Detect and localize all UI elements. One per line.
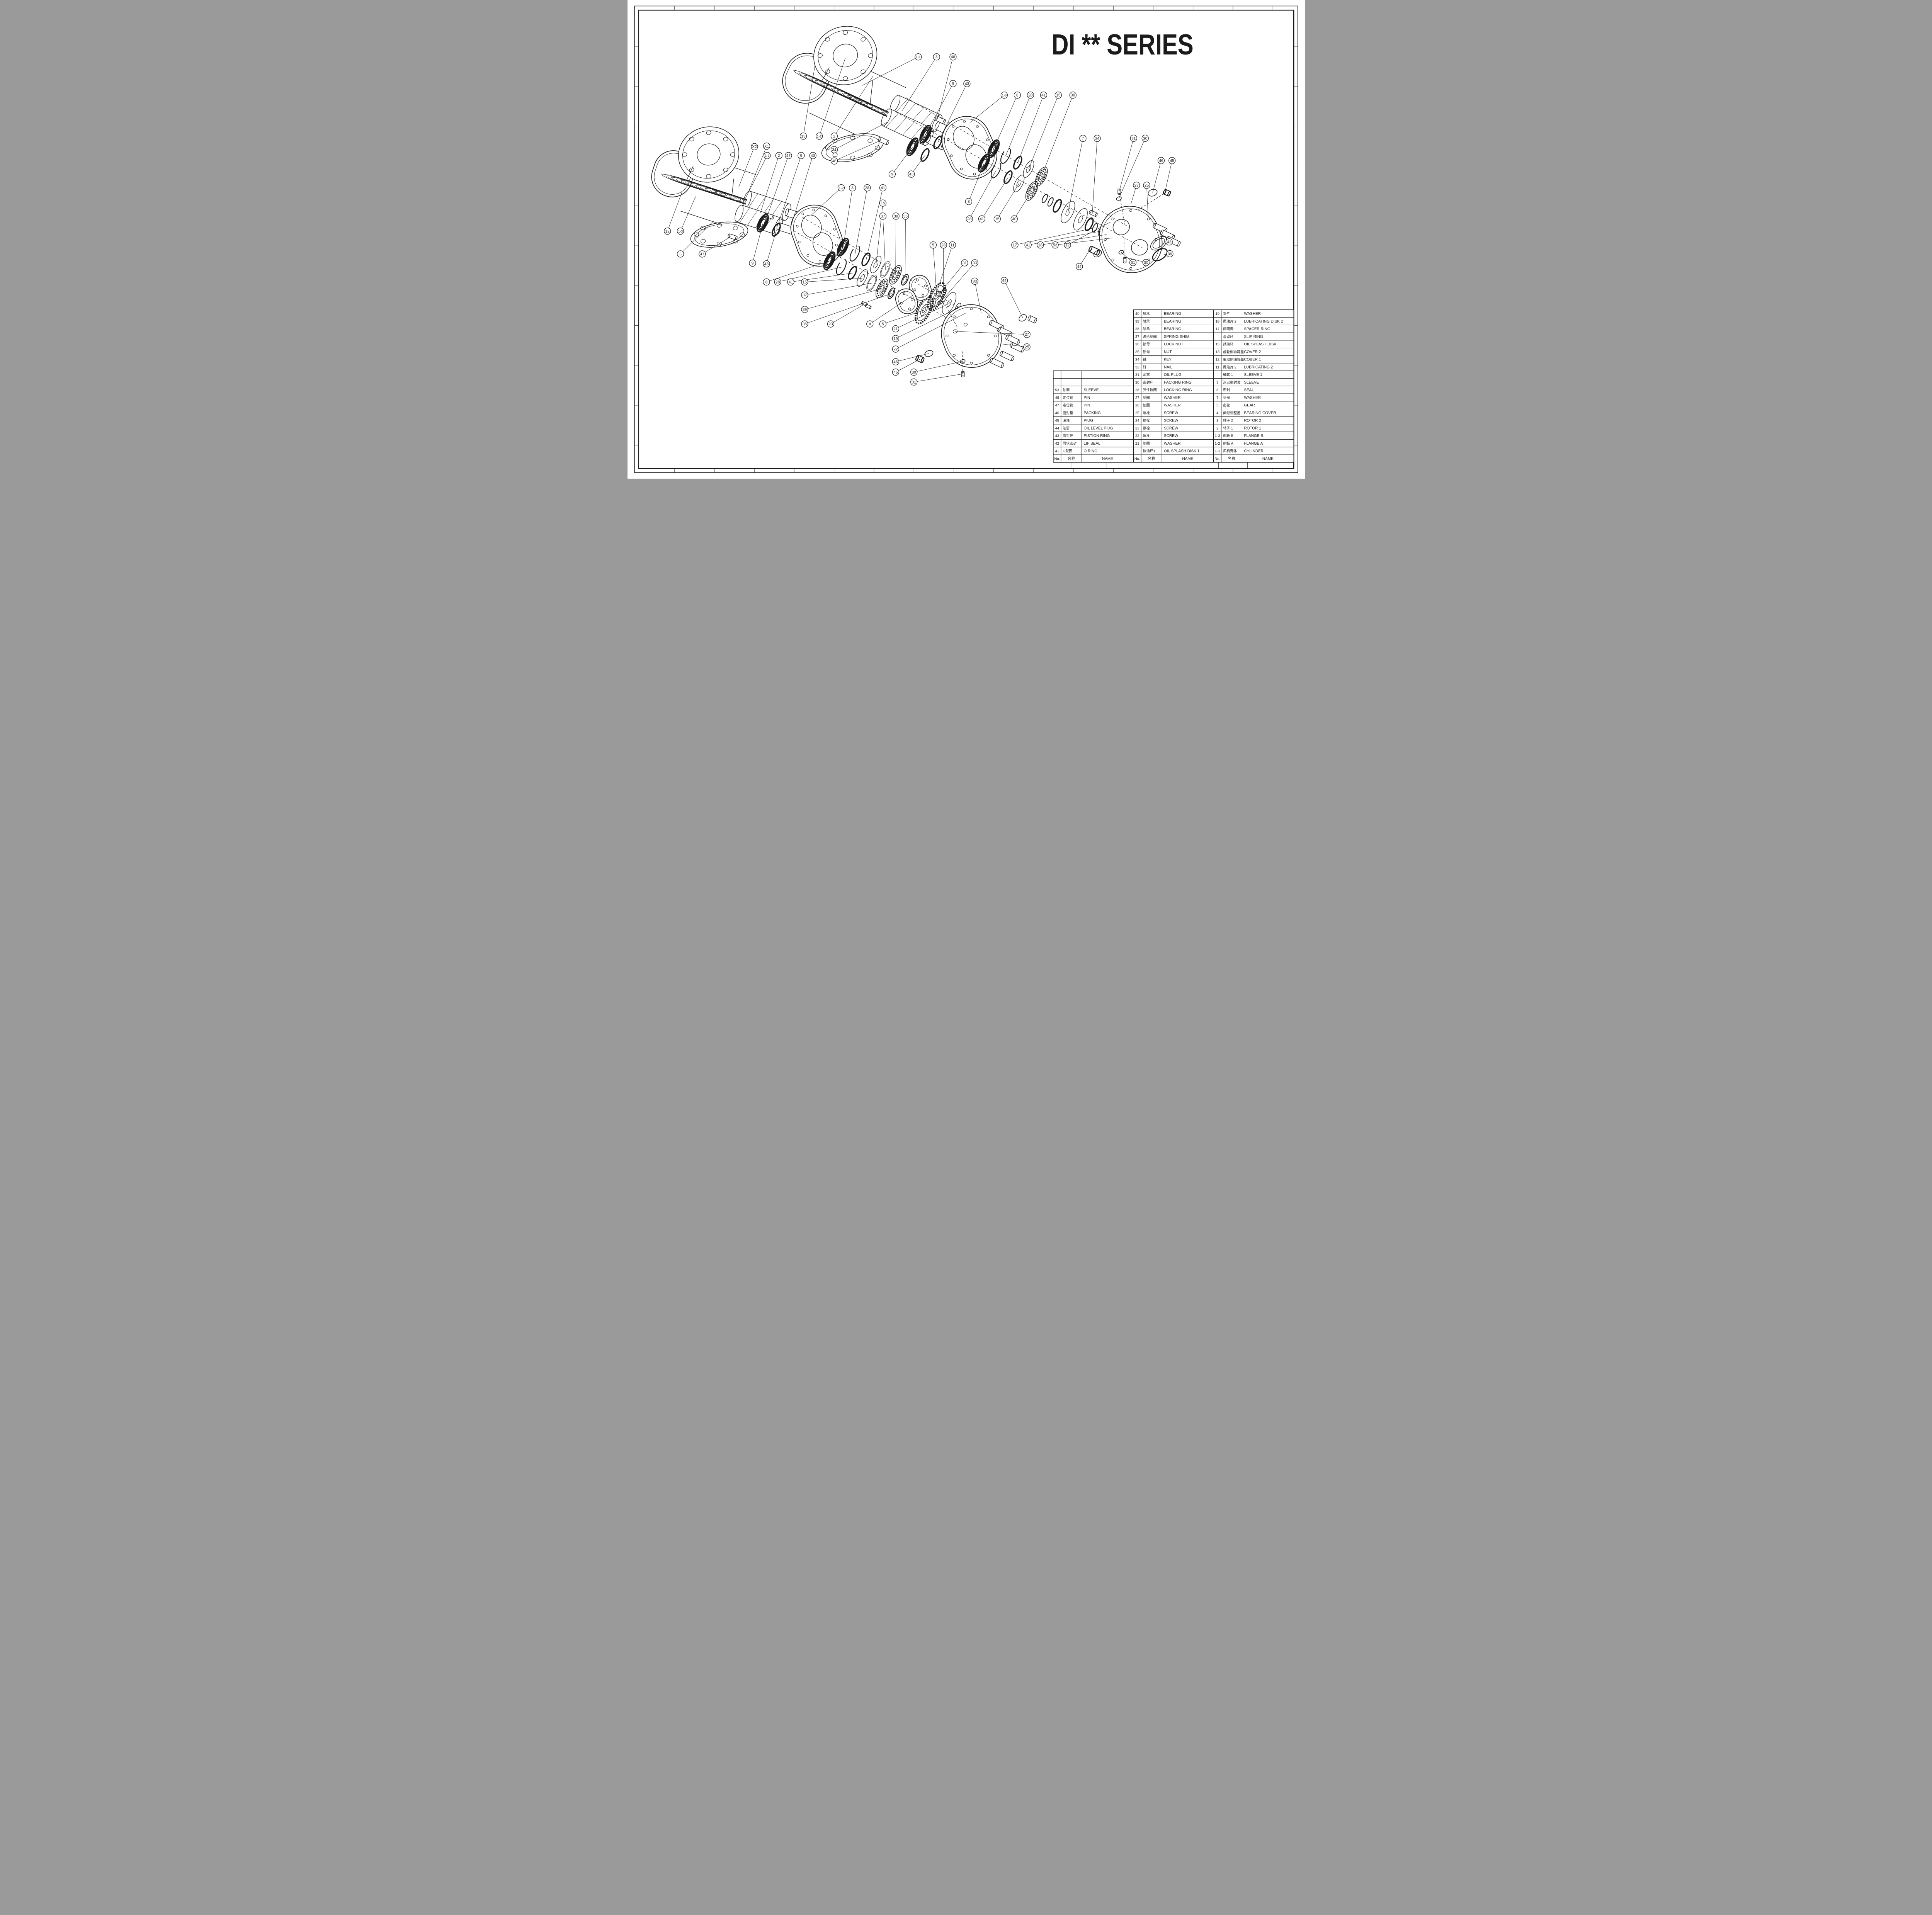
ellipse	[819, 129, 886, 167]
ellipse	[946, 299, 952, 308]
cell-no: 2	[1216, 426, 1218, 430]
cell-name-en: SCREW	[1164, 419, 1179, 423]
leader-line	[1041, 98, 1071, 177]
balloon-41: 41	[978, 177, 1008, 222]
cell-name-en: SPRING SHIM	[1164, 335, 1189, 339]
balloon-label: 36	[1167, 252, 1172, 256]
balloon-23: 23	[827, 304, 864, 327]
balloon-37: 37	[879, 213, 886, 270]
cell-no: 28	[1135, 388, 1139, 393]
ellipse	[1083, 217, 1095, 232]
cell-no: 24	[1135, 419, 1139, 423]
balloon-label: 5	[932, 243, 934, 248]
leader-line	[993, 98, 1016, 149]
cell-name-en: PACKING	[1083, 411, 1100, 415]
cell-name-cn: 滑动环	[1223, 335, 1233, 338]
balloon-24: 24	[1092, 135, 1100, 214]
cell-name-cn: 油堵	[1063, 418, 1070, 423]
part-cylinder	[1088, 210, 1098, 217]
cell-name-cn: 驱动侧油箱盖	[1223, 357, 1244, 362]
balloon-43: 43	[908, 155, 925, 177]
balloon-41: 41	[1017, 92, 1046, 163]
cell-no: 30	[1135, 381, 1139, 385]
cell-name-cn: 轴承	[1143, 311, 1150, 316]
header-en: NAME	[1262, 457, 1273, 461]
cell-no: 33	[1135, 365, 1139, 369]
balloon-28: 28	[1005, 92, 1033, 156]
balloon-label: 30	[973, 261, 977, 265]
cell-no: 41	[1055, 449, 1059, 454]
cell-name-en: BEARING	[1164, 327, 1181, 331]
ellipse	[1002, 170, 1014, 185]
leader-line	[894, 147, 913, 171]
balloon-label: 44	[1077, 265, 1082, 269]
cell-no: 48	[1055, 396, 1059, 400]
cell-no: 38	[1135, 327, 1139, 331]
line	[870, 80, 872, 105]
cell-name-cn: 垫片	[1223, 311, 1230, 316]
cell-name-cn: 转子 1	[1223, 426, 1233, 430]
part-cylinder	[915, 355, 924, 363]
ellipse	[1077, 215, 1083, 224]
balloon-40: 40	[1011, 191, 1032, 222]
rect	[1090, 197, 1171, 282]
cell-name-en: PIUG	[1083, 419, 1093, 423]
leader-line	[1092, 142, 1097, 214]
cell-name-en: SLEEVE	[1083, 388, 1099, 393]
balloon-label: 37	[802, 293, 807, 297]
cell-name-cn: 螺栓	[1143, 418, 1150, 423]
balloon-38: 38	[1041, 92, 1076, 177]
part-oring	[1002, 170, 1014, 185]
ellipse	[919, 148, 930, 162]
balloon-15: 15	[1029, 92, 1061, 169]
balloon-label: 37	[881, 214, 885, 219]
cell-name-cn: 轴承	[1143, 327, 1150, 331]
cell-name-en: WASHER	[1164, 442, 1180, 446]
balloon-label: 33	[973, 279, 977, 284]
cell-no: 1-1	[1214, 449, 1220, 454]
cell-name-cn: 钉	[1143, 365, 1146, 369]
balloon-label: 31	[912, 380, 916, 384]
cell-no: 19	[1215, 312, 1219, 316]
cell-no: 4	[1216, 411, 1218, 415]
part-nut	[886, 287, 896, 300]
cell-name-en: BEARING	[1164, 319, 1181, 324]
balloon-label: 53	[1053, 243, 1058, 248]
fin	[695, 183, 752, 206]
cell-no: 1-3	[1214, 434, 1220, 438]
cell-name-cn: 间隔套	[1223, 327, 1233, 331]
cell-name-en: WASHER	[1244, 396, 1260, 400]
ellipse	[888, 289, 895, 297]
cell-name-en: ROTOR 1	[1244, 426, 1261, 430]
cell-no: 46	[1055, 411, 1059, 415]
part-clip	[848, 245, 861, 263]
cell-name-en: SEAL	[1244, 388, 1254, 393]
balloon-label: 3	[679, 252, 682, 257]
cell-name-en: COBER 1	[1244, 358, 1261, 362]
cell-name-cn: 螺栓	[1143, 426, 1150, 430]
cell-name-en: LIP SEAL	[1083, 442, 1100, 446]
balloon-label: 28	[1028, 93, 1033, 98]
balloon-label: 43	[964, 82, 969, 86]
part-bearing	[1023, 180, 1040, 202]
leader-line	[833, 304, 864, 322]
cell-no: 53	[1055, 388, 1059, 393]
drawing-sheet: 131-223448X2X11-1247943121-33471-1348943…	[628, 0, 1305, 479]
cell-no: 7	[1216, 396, 1218, 400]
cell-name-en: SCREW	[1164, 426, 1179, 430]
balloon-label: 15	[995, 217, 1000, 221]
part-oring	[847, 265, 858, 280]
ellipse	[872, 260, 879, 269]
balloon-label: 7	[1082, 137, 1084, 141]
ellipse	[1041, 194, 1049, 204]
leader-line	[1005, 284, 1022, 318]
ellipse	[879, 285, 884, 292]
ellipse	[900, 274, 910, 286]
ellipse	[868, 255, 883, 274]
cell-name-cn: 侧板 B	[1223, 433, 1233, 438]
ellipse	[1065, 208, 1071, 216]
ellipse	[905, 136, 920, 157]
balloon-30: 30	[910, 361, 963, 375]
balloon-label: 48	[832, 159, 837, 163]
cell-name-en: ROTOR 2	[1244, 419, 1261, 423]
cell-name-en: WASHER	[1244, 312, 1260, 316]
balloon-label: 28	[865, 186, 869, 190]
balloon-1-3: 1-3	[677, 197, 696, 234]
cell-no: 43	[1055, 434, 1059, 438]
ellipse	[847, 265, 858, 280]
balloon-label: 21	[893, 327, 898, 331]
balloon-label: 48	[951, 55, 955, 59]
balloon-label: 41	[788, 280, 793, 284]
balloon-label: 47	[786, 154, 791, 158]
balloon-label: 41	[980, 217, 984, 221]
cell-name-en: WASHER	[1164, 403, 1180, 408]
leader-line	[917, 361, 963, 371]
leader-line	[937, 60, 952, 119]
balloon-label: 18	[1038, 243, 1043, 248]
cell-name-cn: 弹性挡圈	[1143, 388, 1156, 392]
leader-line	[1017, 98, 1042, 163]
cell-name-en: BEARING COVER	[1244, 411, 1276, 415]
cell-name-en: SCREW	[1164, 434, 1179, 438]
cell-no: 37	[1135, 335, 1139, 339]
part-flange	[819, 129, 886, 167]
ellipse	[1017, 313, 1027, 323]
balloon-label: 3	[935, 55, 937, 59]
balloon-label: 22	[893, 347, 898, 352]
balloon-label: 40	[1012, 217, 1017, 221]
cell-name-en: LOCKING RING	[1164, 388, 1192, 393]
cell-no: 42	[1055, 442, 1059, 446]
balloon-label: 8	[765, 280, 767, 284]
cell-name-cn: 挡油环	[1223, 342, 1233, 346]
leader-line	[855, 191, 866, 254]
cell-no: 1-2	[1214, 442, 1220, 446]
cell-name-en: SLEEVE 1	[1244, 373, 1262, 377]
leader-line	[999, 184, 1019, 216]
ellipse	[902, 276, 908, 284]
leader-line	[899, 353, 929, 361]
balloon-label: 25	[1025, 345, 1029, 350]
balloon-31: 31	[939, 260, 968, 294]
cell-no: 18	[1215, 319, 1219, 324]
leader-line	[970, 97, 1002, 123]
ellipse	[848, 245, 861, 263]
leader-line	[1005, 98, 1029, 156]
cell-no: 23	[1135, 426, 1139, 430]
balloon-label: 35	[802, 322, 807, 326]
leader-line	[940, 265, 973, 302]
balloon-label: 15	[881, 201, 885, 206]
balloon-label: 15	[1056, 93, 1061, 98]
cell-name-cn: 油窗	[1063, 426, 1070, 430]
leader-line	[769, 261, 829, 281]
leader-line	[905, 219, 905, 280]
leader-line	[808, 278, 862, 282]
balloon-label: 35	[903, 214, 908, 219]
cell-name-en: BEARING	[1164, 312, 1181, 316]
balloon-label: 23	[828, 322, 833, 326]
leader-line	[913, 155, 925, 172]
leader-line	[808, 289, 882, 309]
leader-line	[1165, 164, 1171, 193]
leader-line	[738, 150, 753, 187]
balloon-label: 4	[869, 322, 871, 326]
balloon-label: 46	[893, 360, 898, 364]
cell-name-cn: 定位销	[1063, 403, 1073, 407]
balloon-label: 15	[802, 280, 807, 284]
balloon-label: 17	[1012, 243, 1017, 248]
part-cylinder	[1088, 246, 1100, 256]
balloon-label: 8	[968, 200, 970, 204]
leader-line	[748, 149, 765, 191]
balloon-label: 27	[1134, 184, 1139, 188]
cell-no: 9	[1216, 381, 1218, 385]
ellipse	[893, 271, 898, 278]
part-seal	[905, 136, 920, 157]
cell-name-cn: O型圈	[1063, 449, 1072, 453]
balloon-label: 13	[801, 134, 806, 139]
cell-name-cn: 风机壳体	[1223, 449, 1237, 453]
cell-no: 26	[1135, 403, 1139, 408]
exploded-view-art	[646, 18, 1181, 377]
balloon-label: 43	[909, 172, 913, 177]
balloon-46: 46	[892, 353, 929, 365]
balloon-30: 30	[1119, 135, 1148, 198]
cell-name-en: PISTION RING	[1083, 434, 1110, 438]
balloon-31: 31	[910, 374, 963, 385]
cell-name-en: LUBRICATING DISK 2	[1244, 319, 1283, 324]
cell-no: 40	[1135, 312, 1139, 316]
balloon-label: 11	[950, 243, 954, 248]
leader-line	[1153, 164, 1160, 193]
leader-line	[898, 359, 920, 371]
balloon-label: 26	[941, 243, 946, 248]
ellipse	[834, 258, 848, 276]
cell-no: 44	[1055, 426, 1059, 430]
balloon-label: 43	[811, 154, 815, 158]
balloon-2: 2	[831, 76, 872, 139]
balloon-label: 9	[751, 262, 753, 266]
balloon-label: 39	[802, 308, 807, 312]
part-oring	[919, 148, 930, 162]
cell-name-cn: 唇状密封	[1063, 441, 1077, 445]
ellipse	[923, 349, 934, 358]
cell-name-en: OIL SPLASH DISK	[1244, 342, 1276, 347]
cell-name-en: CYLINDER	[1244, 449, 1264, 454]
cell-name-en: OIL PLUG	[1164, 373, 1182, 377]
balloon-label: 1-1	[916, 55, 921, 59]
balloon-label: 42	[1167, 240, 1172, 245]
cell-name-en: KEY	[1164, 358, 1172, 362]
part-plate	[1090, 197, 1171, 282]
cell-name-cn: 甩油片 2	[1223, 365, 1236, 369]
ellipse	[1116, 196, 1122, 201]
part-cylinder	[1123, 257, 1126, 263]
balloon-label: 1-3	[678, 229, 683, 233]
balloon-label: X1	[764, 144, 769, 149]
ellipse	[1015, 179, 1022, 188]
cell-name-cn: 锁母	[1143, 350, 1150, 354]
balloon-label: 12	[1065, 243, 1070, 248]
balloon-8: 8	[843, 185, 855, 248]
part-cylinder	[865, 304, 871, 309]
balloon-label: 43	[764, 262, 769, 267]
cell-no: 21	[1135, 442, 1139, 446]
balloon-45: 45	[1165, 157, 1175, 193]
cell-no: 35	[1135, 350, 1139, 354]
balloon-41: 41	[1025, 231, 1101, 248]
cell-no: 13	[1215, 350, 1219, 354]
ellipse	[859, 274, 865, 282]
balloon-39: 39	[801, 289, 882, 313]
balloon-label: 30	[1144, 261, 1148, 265]
cell-no: 8	[1216, 388, 1218, 393]
cell-name-cn: 轴套 1	[1223, 372, 1233, 377]
cell-name-en: COVER 2	[1244, 350, 1261, 354]
cell-name-cn: 轴套	[1063, 388, 1070, 392]
cell-name-cn: 密封垫	[1063, 411, 1073, 415]
cell-no: 27	[1135, 396, 1139, 400]
parts-list-table: 53轴套SLEEVE48定位销PIN47定位销PIN46密封垫PACKING45…	[1053, 310, 1293, 469]
leader-line	[983, 177, 1008, 216]
header-no: No.	[1134, 457, 1140, 461]
cell-name-cn: 垫圈	[1223, 395, 1230, 399]
balloon-label: 31	[962, 261, 967, 265]
balloon-label: 31	[1131, 261, 1135, 265]
rect	[784, 199, 849, 272]
cell-name-en: OIL LEVEL PIUG	[1083, 426, 1113, 430]
cell-no: 47	[1055, 403, 1059, 408]
fin	[835, 88, 895, 120]
cell-no: 22	[1135, 434, 1139, 438]
balloon-28: 28	[855, 185, 870, 254]
fin	[825, 83, 885, 115]
balloon-label: 9	[952, 82, 954, 86]
balloon-label: 30	[1143, 136, 1148, 141]
balloon-label: 38	[1071, 93, 1075, 98]
header-cn: 名称	[1148, 456, 1155, 461]
balloon-label: 25	[1144, 184, 1149, 188]
leader-line	[866, 191, 882, 259]
balloon-42: 42	[1164, 239, 1172, 245]
leader-line	[1131, 189, 1135, 204]
cell-name-en: NAIL	[1164, 365, 1173, 369]
cell-name-en: SPACER RING	[1244, 327, 1270, 331]
balloon-label: 34	[832, 148, 837, 152]
ellipse	[1011, 173, 1026, 193]
cell-name-en: OIL SPLASH DISK 1	[1164, 449, 1200, 454]
balloon-27: 27	[1131, 182, 1139, 204]
balloon-label: 8	[1016, 93, 1019, 98]
balloon-label: 41	[1041, 93, 1046, 98]
balloon-26: 26	[940, 242, 947, 293]
part-disk	[868, 255, 883, 274]
cell-name-en: O RING	[1083, 449, 1097, 454]
cell-name-cn: 密封环	[1063, 433, 1073, 438]
rect	[990, 358, 1003, 368]
part-oring	[860, 252, 871, 267]
part-disk	[1011, 173, 1026, 193]
cell-name-en: GEAR	[1244, 403, 1255, 408]
cell-name-en: FLANGE A	[1244, 442, 1263, 446]
ellipse	[860, 252, 871, 267]
cell-name-cn: 轴承	[1143, 319, 1150, 323]
cell-name-cn: 垫圈	[1143, 403, 1150, 407]
cell-name-cn: 转子 2	[1223, 418, 1233, 423]
cell-name-cn: 齿轮	[1223, 403, 1230, 407]
balloon-label: 2	[777, 154, 780, 158]
sheet-title: DI ** SERIES	[1051, 28, 1193, 61]
cell-name-cn: 侧板 A	[1223, 441, 1233, 445]
header-en: NAME	[1102, 457, 1113, 461]
header-cn: 名称	[1228, 456, 1235, 461]
part-washer	[1071, 206, 1090, 232]
balloon-label: 30	[912, 370, 916, 375]
cell-no: 25	[1135, 411, 1139, 415]
balloon-label: 24	[1095, 137, 1100, 141]
balloon-44: 44	[1001, 277, 1022, 318]
part-ring_s	[1041, 194, 1049, 204]
line	[731, 178, 733, 196]
cell-no: 3	[1216, 419, 1218, 423]
ellipse	[1071, 206, 1090, 232]
balloon-label: 27	[1025, 333, 1029, 337]
header-no: No.	[1054, 457, 1060, 461]
leader-line	[939, 265, 963, 294]
leader-line	[917, 374, 963, 382]
balloon-X2: X2	[738, 143, 757, 187]
balloon-1-3: 1-3	[970, 92, 1007, 123]
cell-name-cn: 波形垫圈	[1143, 334, 1156, 338]
cell-no: 36	[1135, 342, 1139, 347]
cell-name-en: LOCK NUT	[1164, 342, 1183, 347]
cell-name-cn: 螺栓	[1143, 433, 1150, 438]
balloon-label: 41	[881, 186, 885, 190]
balloon-1-1: 1-1	[745, 152, 770, 199]
cell-name-cn: 密封环	[1143, 380, 1153, 384]
balloon-label: 39	[894, 214, 898, 219]
part-oring	[1083, 217, 1095, 232]
balloon-label: 28	[967, 217, 972, 221]
cell-name-cn: 间隙调整盖	[1223, 411, 1240, 415]
part-cylinder	[1163, 189, 1171, 196]
